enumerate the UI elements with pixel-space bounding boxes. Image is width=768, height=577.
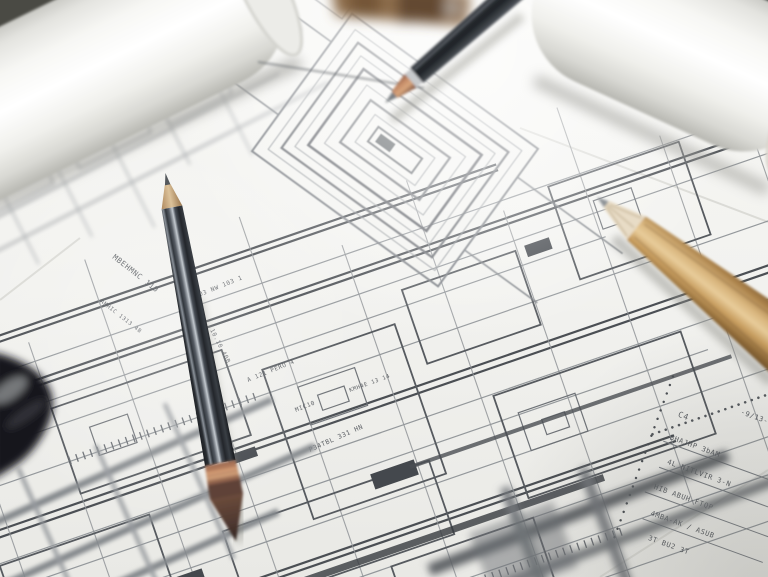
photo-canvas: MBEHMNC 110 AMHIC 1313 4B MO3 NW 103 1 1… [0,0,768,577]
blueprint-photo: MBEHMNC 110 AMHIC 1313 4B MO3 NW 103 1 1… [0,0,768,577]
vignette [0,0,768,577]
